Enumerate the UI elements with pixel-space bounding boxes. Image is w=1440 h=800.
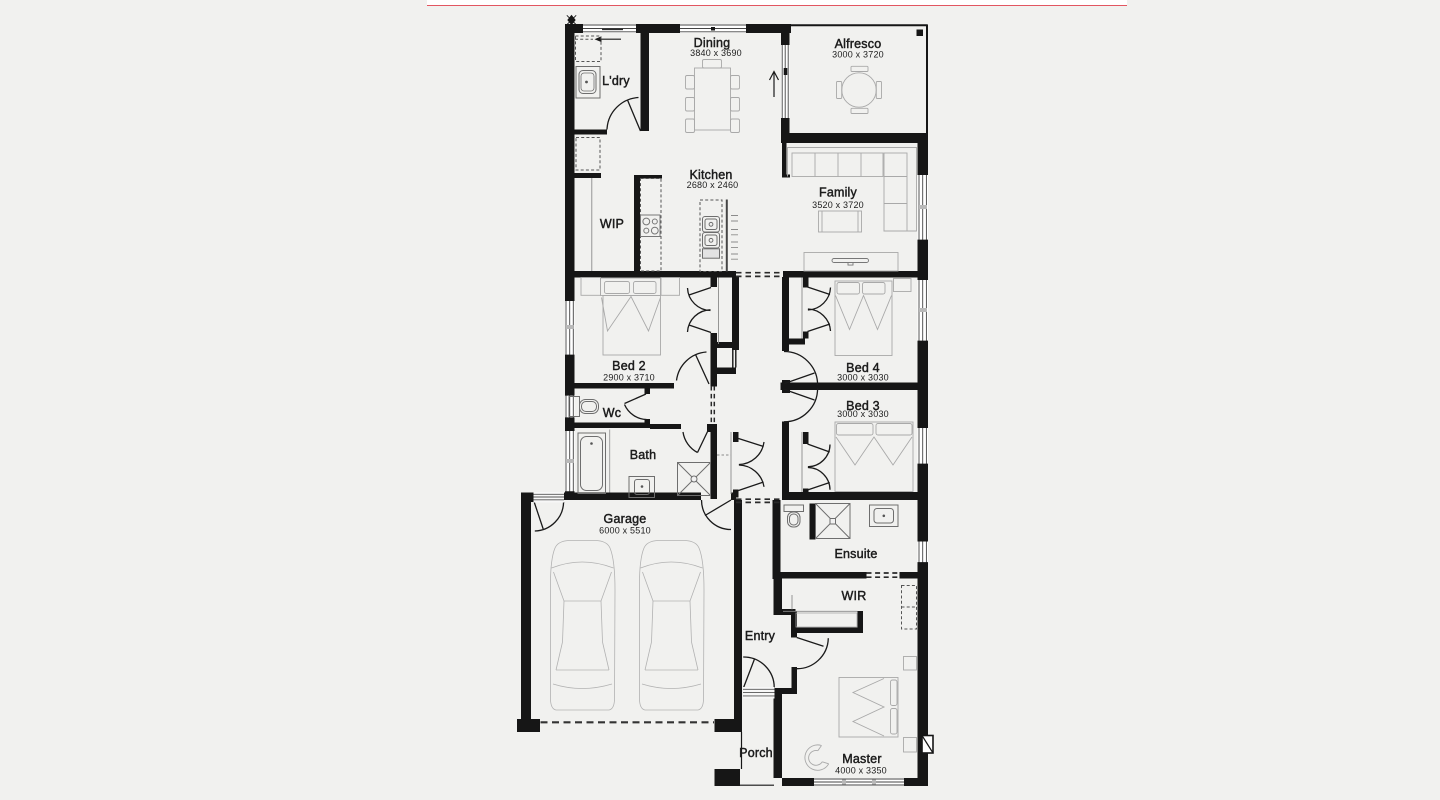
svg-text:2680 x 2460: 2680 x 2460 <box>687 180 739 190</box>
svg-text:WIR: WIR <box>842 589 867 603</box>
svg-text:Porch: Porch <box>739 746 773 760</box>
svg-text:Bath: Bath <box>630 448 657 462</box>
svg-text:L'dry: L'dry <box>602 74 630 88</box>
svg-text:2900 x 3710: 2900 x 3710 <box>603 373 655 383</box>
svg-text:Garage: Garage <box>604 512 647 526</box>
svg-text:4000 x 3350: 4000 x 3350 <box>835 766 887 776</box>
svg-text:Master: Master <box>842 752 881 766</box>
svg-text:Wc: Wc <box>603 406 621 420</box>
svg-text:3000 x 3030: 3000 x 3030 <box>837 373 889 383</box>
svg-text:3840 x 3690: 3840 x 3690 <box>690 48 742 58</box>
svg-text:3520 x 3720: 3520 x 3720 <box>812 200 864 210</box>
svg-text:Ensuite: Ensuite <box>834 547 877 561</box>
svg-text:Bed 2: Bed 2 <box>612 359 646 373</box>
svg-text:3000 x 3720: 3000 x 3720 <box>832 50 884 60</box>
svg-text:WIP: WIP <box>600 217 624 231</box>
svg-text:3000 x 3030: 3000 x 3030 <box>837 409 889 419</box>
svg-text:6000 x 5510: 6000 x 5510 <box>599 526 651 536</box>
svg-text:Entry: Entry <box>745 629 776 643</box>
svg-text:Family: Family <box>819 186 858 200</box>
